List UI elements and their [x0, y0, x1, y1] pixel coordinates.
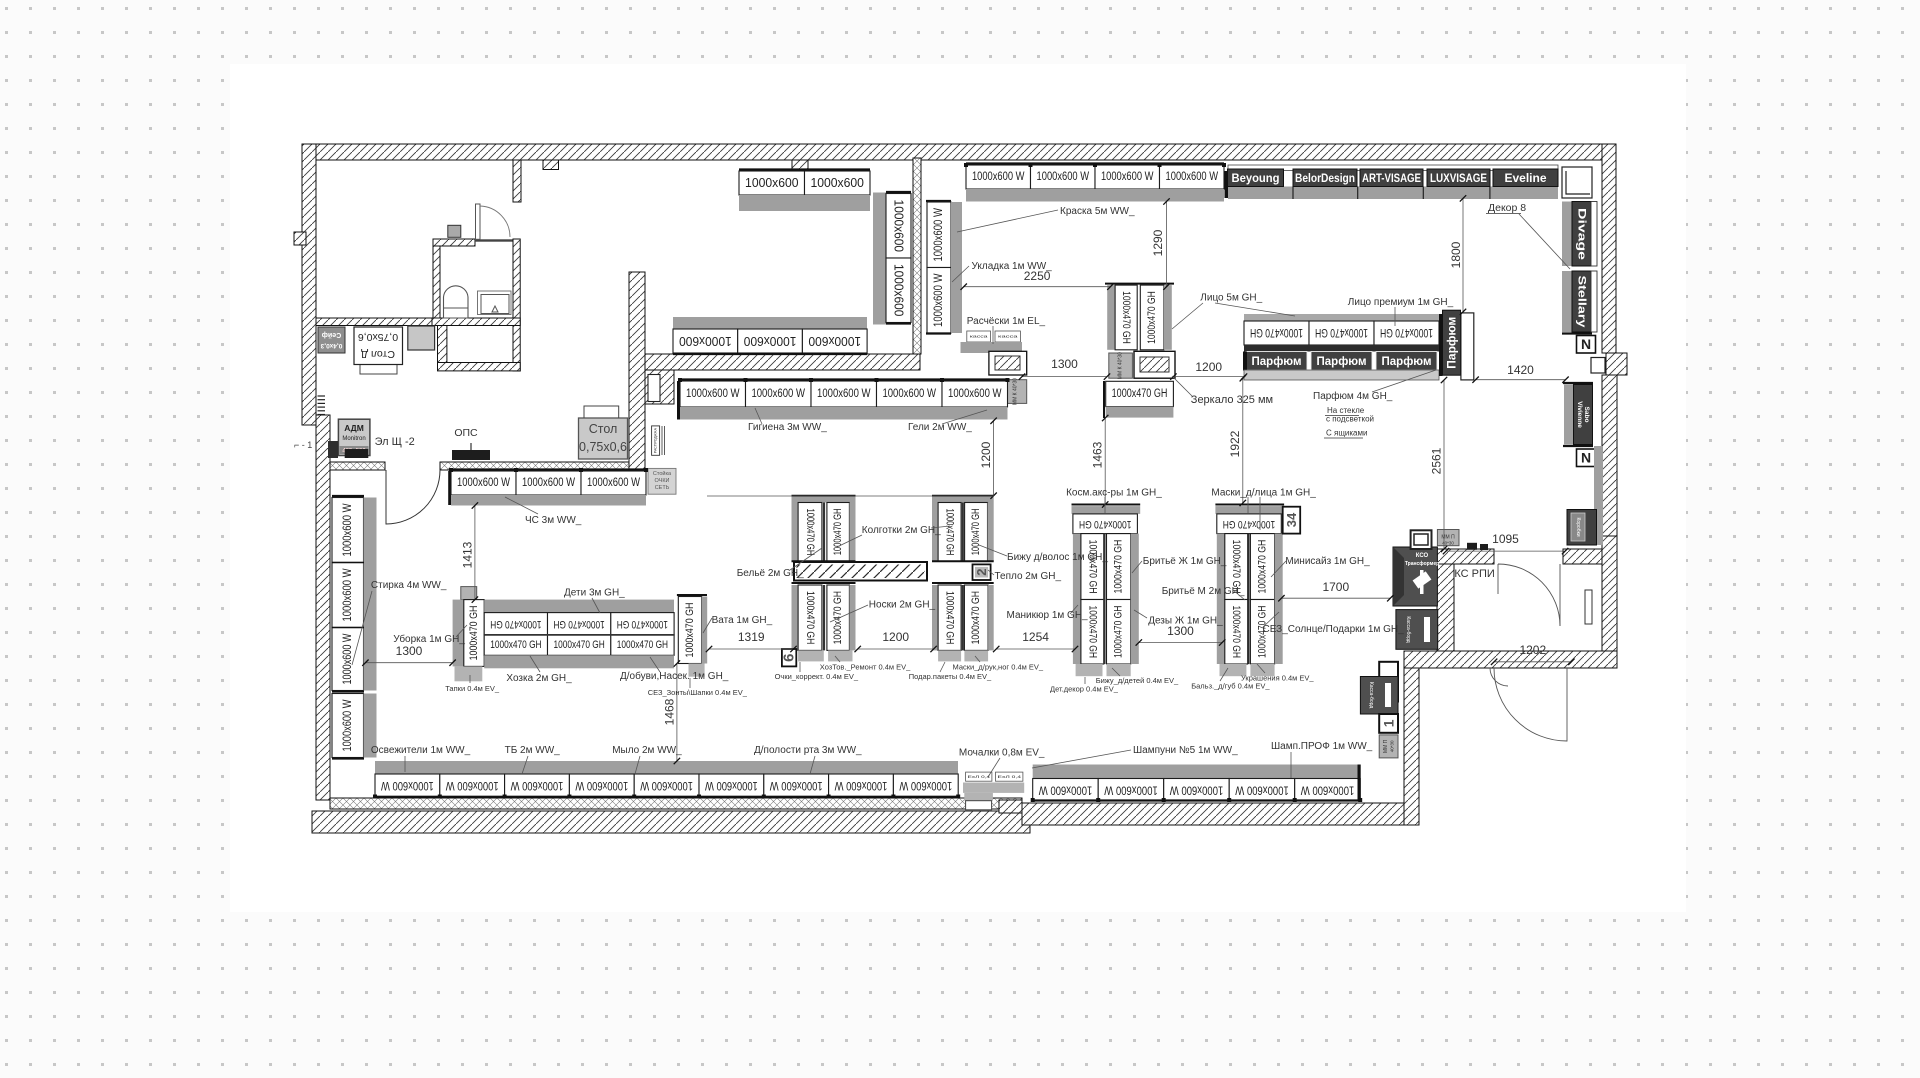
svg-text:Маски_д/лица 1м GH_: Маски_д/лица 1м GH_ — [1211, 488, 1316, 499]
svg-text:1000х470 GH: 1000х470 GH — [684, 602, 696, 657]
svg-text:1000х600 W: 1000х600 W — [446, 779, 499, 791]
svg-text:1000х600 W: 1000х600 W — [948, 388, 1002, 400]
svg-text:Парфюм: Парфюм — [1382, 354, 1432, 368]
svg-text:1000х600 W: 1000х600 W — [1039, 784, 1093, 796]
svg-text:1000х600 W: 1000х600 W — [640, 779, 693, 791]
svg-text:Бальз._д/губ 0.4м EV_: Бальз._д/губ 0.4м EV_ — [1191, 682, 1270, 691]
svg-text:1000х470 GH: 1000х470 GH — [1113, 606, 1125, 659]
svg-text:Очки_коррект. 0.4м EV_: Очки_коррект. 0.4м EV_ — [775, 672, 859, 681]
svg-text:1000х600 W: 1000х600 W — [1166, 171, 1219, 183]
svg-text:1000х600 W: 1000х600 W — [834, 779, 887, 791]
svg-text:1095: 1095 — [1492, 532, 1519, 546]
svg-text:ММ П: ММ П — [1383, 739, 1389, 753]
svg-text:Стол: Стол — [589, 422, 618, 436]
svg-text:1000х470 GH: 1000х470 GH — [1223, 518, 1276, 530]
svg-text:1000х600: 1000х600 — [679, 334, 732, 348]
svg-text:Маски_д/рук,ног 0.4м EV_: Маски_д/рук,ног 0.4м EV_ — [953, 663, 1044, 672]
svg-text:СЕЗ_Зонты\Шапки 0.4м EV_: СЕЗ_Зонты\Шапки 0.4м EV_ — [648, 688, 748, 697]
svg-text:С ящиками: С ящиками — [1326, 429, 1367, 438]
svg-text:1000х600 W: 1000х600 W — [899, 779, 952, 791]
svg-text:Бритьё М 2м GH_: Бритьё М 2м GH_ — [1162, 586, 1245, 597]
svg-text:Косм.акс-ры 1м GH_: Косм.акс-ры 1м GH_ — [1066, 488, 1162, 499]
svg-text:1000х470 GH: 1000х470 GH — [617, 618, 668, 630]
svg-text:1000х600 W: 1000х600 W — [1170, 784, 1224, 796]
svg-text:1000х470 GH: 1000х470 GH — [970, 508, 982, 555]
svg-text:1000х600 W: 1000х600 W — [972, 171, 1025, 183]
svg-text:1000х600: 1000х600 — [808, 334, 861, 348]
svg-text:касса: касса — [970, 335, 989, 339]
svg-text:ОПС: ОПС — [454, 427, 478, 439]
svg-text:1800: 1800 — [1449, 241, 1463, 268]
svg-text:1319: 1319 — [738, 630, 765, 644]
svg-text:1000х600 W: 1000х600 W — [705, 779, 758, 791]
svg-text:1202: 1202 — [1519, 643, 1546, 657]
svg-text:1300: 1300 — [1051, 357, 1078, 371]
svg-text:КС РПИ: КС РПИ — [1454, 568, 1494, 580]
svg-text:1000х600 W: 1000х600 W — [1101, 171, 1154, 183]
svg-text:1000х470 GH: 1000х470 GH — [804, 591, 816, 644]
svg-text:Stellary: Stellary — [1576, 276, 1588, 329]
svg-text:касса: касса — [998, 335, 1019, 339]
svg-text:ХозТов._Ремонт 0.4м EV_: ХозТов._Ремонт 0.4м EV_ — [820, 663, 911, 672]
svg-text:1000х600 W: 1000х600 W — [817, 388, 871, 400]
svg-text:Д/полости рта 3м WW_: Д/полости рта 3м WW_ — [754, 745, 862, 756]
svg-text:Парфюм 4м GH_: Парфюм 4м GH_ — [1313, 390, 1393, 402]
svg-text:1200: 1200 — [882, 630, 909, 644]
svg-text:1000х470 GH: 1000х470 GH — [1380, 326, 1433, 340]
svg-text:1000х470 GH: 1000х470 GH — [970, 591, 982, 644]
svg-text:1922: 1922 — [1228, 430, 1242, 457]
svg-text:Divage: Divage — [1576, 208, 1588, 260]
svg-text:Vivienne: Vivienne — [1576, 401, 1583, 428]
svg-text:Мочалки 0,8м EV_: Мочалки 0,8м EV_ — [959, 748, 1045, 759]
svg-text:АДМ: АДМ — [344, 423, 364, 433]
svg-text:Sabo: Sabo — [1583, 407, 1590, 423]
svg-text:1000х600 W: 1000х600 W — [342, 568, 354, 621]
svg-text:Дезы Ж 1м GH_: Дезы Ж 1м GH_ — [1148, 616, 1223, 627]
svg-text:1000х470 GH: 1000х470 GH — [1113, 540, 1125, 594]
svg-text:1000х470 GH: 1000х470 GH — [1257, 540, 1269, 594]
svg-text:Тепло 2м GH_: Тепло 2м GH_ — [995, 571, 1062, 582]
svg-text:Уборка 1м GH_: Уборка 1м GH_ — [393, 633, 465, 645]
svg-text:Стирка 4м WW_: Стирка 4м WW_ — [371, 580, 447, 591]
svg-text:Eveline: Eveline — [1505, 171, 1547, 185]
svg-text:1000х600: 1000х600 — [810, 176, 864, 190]
svg-text:1000х600 W: 1000х600 W — [1037, 171, 1090, 183]
svg-text:1290: 1290 — [1151, 229, 1165, 256]
svg-text:Бижу д/волос 1м GH_: Бижу д/волос 1м GH_ — [1007, 552, 1108, 563]
svg-text:1000х470 GH: 1000х470 GH — [1250, 326, 1303, 340]
svg-text:1000х600 W: 1000х600 W — [686, 388, 740, 400]
svg-text:Эл Щ -2: Эл Щ -2 — [375, 436, 415, 448]
svg-text:ММ К 40*30: ММ К 40*30 — [1118, 352, 1124, 379]
svg-text:1000х600 W: 1000х600 W — [342, 633, 354, 684]
svg-text:Бижу_д/детей 0.4м EV_: Бижу_д/детей 0.4м EV_ — [1096, 676, 1179, 685]
svg-text:1000х600 W: 1000х600 W — [522, 477, 575, 489]
svg-text:Дет.декор 0.4м EV_: Дет.декор 0.4м EV_ — [1050, 685, 1119, 694]
svg-text:1463: 1463 — [1091, 441, 1105, 468]
svg-text:1000х470 GH: 1000х470 GH — [1315, 326, 1368, 340]
svg-text:BelorDesign: BelorDesign — [1295, 171, 1355, 185]
svg-text:1000х600: 1000х600 — [745, 176, 799, 190]
svg-text:0,75х0,6: 0,75х0,6 — [358, 331, 398, 343]
svg-text:Д/обуви,Насек. 1м GH_: Д/обуви,Насек. 1м GH_ — [620, 670, 729, 682]
svg-text:Коробки: Коробки — [1575, 517, 1581, 536]
svg-text:2: 2 — [974, 569, 989, 576]
svg-text:1000х600 W: 1000х600 W — [882, 388, 936, 400]
svg-text:1000х470 GH: 1000х470 GH — [1079, 518, 1132, 530]
svg-text:1420: 1420 — [1507, 363, 1534, 377]
svg-text:Расчёски 1м EL_: Расчёски 1м EL_ — [967, 316, 1046, 327]
svg-text:1000х600 W: 1000х600 W — [381, 779, 434, 791]
svg-text:1254: 1254 — [1022, 630, 1049, 644]
svg-text:1000х600 W: 1000х600 W — [587, 477, 640, 489]
svg-text:0,4х0,3: 0,4х0,3 — [320, 342, 342, 349]
svg-text:1000х470 GH: 1000х470 GH — [1146, 291, 1158, 344]
svg-text:0,75х0,6: 0,75х0,6 — [579, 440, 627, 454]
svg-text:1000х600: 1000х600 — [892, 264, 906, 317]
svg-text:1000х600 W: 1000х600 W — [770, 779, 823, 791]
svg-text:2561: 2561 — [1430, 447, 1444, 474]
svg-text:1000х600 W: 1000х600 W — [342, 503, 354, 556]
svg-text:Парфюм: Парфюм — [1317, 354, 1367, 368]
svg-text:ОЧКИ: ОЧКИ — [655, 478, 670, 484]
svg-text:1000х600 W: 1000х600 W — [510, 779, 563, 791]
svg-text:Гигиена 3м WW_: Гигиена 3м WW_ — [748, 422, 827, 433]
svg-text:Дети 3м GH_: Дети 3м GH_ — [564, 588, 625, 599]
svg-text:1000х600 W: 1000х600 W — [751, 388, 805, 400]
svg-text:Monitron: Monitron — [342, 436, 365, 442]
svg-text:Зеркало 325 мм: Зеркало 325 мм — [1191, 394, 1273, 406]
svg-text:40*30: 40*30 — [1390, 740, 1395, 752]
svg-text:N: N — [1581, 450, 1591, 466]
svg-text:РАСПРОДАЖА: РАСПРОДАЖА — [654, 427, 658, 453]
svg-text:1000х470 GH: 1000х470 GH — [1086, 606, 1098, 659]
svg-text:СЕЗ_Солнце/Подарки 1м GH_: СЕЗ_Солнце/Подарки 1м GH_ — [1263, 624, 1405, 635]
svg-text:1000х470 GH: 1000х470 GH — [617, 639, 668, 651]
svg-text:ЕхЛ 0,4: ЕхЛ 0,4 — [968, 774, 992, 779]
svg-text:1000х600 W: 1000х600 W — [1235, 784, 1289, 796]
svg-text:КСО: КСО — [1416, 553, 1429, 559]
svg-text:1468: 1468 — [663, 698, 677, 725]
svg-text:Касса-борд: Касса-борд — [1405, 616, 1411, 642]
svg-text:1413: 1413 — [461, 541, 475, 568]
svg-text:СЕТЬ: СЕТЬ — [655, 485, 670, 491]
svg-text:1200: 1200 — [1195, 360, 1222, 374]
svg-text:1000х470 GH: 1000х470 GH — [468, 606, 480, 661]
svg-text:Стойка: Стойка — [653, 470, 672, 477]
svg-text:1000х600 W: 1000х600 W — [457, 477, 510, 489]
svg-text:ММ К 40*30: ММ К 40*30 — [1013, 378, 1019, 405]
svg-text:1000х600: 1000х600 — [892, 200, 906, 253]
svg-text:1000х470 GH: 1000х470 GH — [1120, 291, 1132, 344]
svg-text:34: 34 — [1284, 512, 1299, 527]
svg-text:1200: 1200 — [979, 441, 993, 468]
svg-text:Лицо премиум 1м GH_: Лицо премиум 1м GH_ — [1348, 297, 1454, 308]
svg-text:1000х470 GH: 1000х470 GH — [944, 509, 956, 556]
svg-text:Трансформер: Трансформер — [1405, 560, 1439, 567]
svg-text:ЧС 3м WW_: ЧС 3м WW_ — [525, 515, 582, 526]
svg-text:⌐ - 1: ⌐ - 1 — [294, 440, 312, 450]
svg-text:1000х470 GH: 1000х470 GH — [832, 508, 844, 555]
svg-text:Бритьё Ж 1м GH_: Бритьё Ж 1м GH_ — [1143, 556, 1227, 567]
svg-text:Шампуни №5 1м WW_: Шампуни №5 1м WW_ — [1133, 745, 1238, 756]
svg-text:1000х470 GH: 1000х470 GH — [553, 618, 604, 630]
svg-text:1000х600 W: 1000х600 W — [575, 779, 628, 791]
svg-text:Касса-борд: Касса-борд — [1368, 682, 1374, 708]
svg-text:Минисайз 1м GH_: Минисайз 1м GH_ — [1285, 556, 1370, 567]
svg-text:Стол Д: Стол Д — [361, 348, 395, 360]
svg-text:1000х470 GH: 1000х470 GH — [804, 509, 816, 556]
svg-text:1000х470 GH: 1000х470 GH — [1086, 540, 1098, 594]
svg-text:1000х470 GH: 1000х470 GH — [1112, 388, 1168, 400]
svg-text:Мыло 2м WW_: Мыло 2м WW_ — [612, 745, 682, 756]
svg-text:1700: 1700 — [1322, 580, 1349, 594]
svg-text:6: 6 — [781, 654, 798, 662]
svg-text:Подар.пакеты 0.4м EV_: Подар.пакеты 0.4м EV_ — [909, 672, 992, 681]
svg-text:Декор 8: Декор 8 — [1488, 202, 1526, 214]
svg-text:1: 1 — [1381, 719, 1397, 727]
svg-text:Краска 5м WW_: Краска 5м WW_ — [1060, 206, 1135, 217]
svg-text:Сейф: Сейф — [322, 331, 341, 339]
svg-text:Маникюр 1м GH_: Маникюр 1м GH_ — [1007, 610, 1089, 621]
svg-text:Beyoung: Beyoung — [1232, 171, 1280, 185]
svg-text:1000х470 GH: 1000х470 GH — [1230, 606, 1242, 659]
svg-text:1300: 1300 — [396, 644, 423, 658]
svg-text:ART-VISAGE: ART-VISAGE — [1362, 171, 1421, 185]
svg-text:Украшения 0.4м EV_: Украшения 0.4м EV_ — [1241, 674, 1314, 683]
svg-text:Бельё 2м GH_: Бельё 2м GH_ — [737, 568, 804, 579]
svg-text:N: N — [1581, 336, 1591, 352]
svg-text:1000х600 W: 1000х600 W — [1104, 784, 1158, 796]
svg-text:с подсветкой: с подсветкой — [1326, 415, 1374, 424]
svg-text:1000х470 GH: 1000х470 GH — [944, 591, 956, 644]
svg-text:1000х470 GH: 1000х470 GH — [490, 639, 541, 651]
svg-text:Тапки 0.4м EV_: Тапки 0.4м EV_ — [445, 684, 500, 693]
svg-text:1000х600 W: 1000х600 W — [342, 699, 354, 751]
svg-text:1000х470 GH: 1000х470 GH — [490, 618, 541, 630]
svg-text:Хозка 2м GH_: Хозка 2м GH_ — [506, 673, 572, 684]
svg-text:Колготки 2м GH_: Колготки 2м GH_ — [862, 525, 941, 536]
svg-text:Носки 2м GH_: Носки 2м GH_ — [869, 600, 936, 611]
svg-text:ЕхЛ 0,4: ЕхЛ 0,4 — [998, 774, 1023, 779]
svg-text:1000х470 GH: 1000х470 GH — [553, 639, 604, 651]
svg-text:ТБ 2м WW_: ТБ 2м WW_ — [505, 745, 561, 756]
svg-text:Укладка 1м WW_: Укладка 1м WW_ — [972, 261, 1053, 272]
svg-text:LUXVISAGE: LUXVISAGE — [1430, 171, 1487, 185]
svg-text:Вата 1м GH_: Вата 1м GH_ — [712, 615, 773, 626]
svg-text:1000х600 W: 1000х600 W — [1301, 784, 1355, 796]
svg-text:Парфюм: Парфюм — [1252, 354, 1302, 368]
svg-text:1000х470 GH: 1000х470 GH — [832, 591, 844, 644]
svg-text:1000х600 W: 1000х600 W — [933, 273, 945, 327]
svg-text:Парфюм: Парфюм — [1445, 317, 1459, 369]
svg-text:Лицо 5м GH_: Лицо 5м GH_ — [1200, 293, 1262, 304]
svg-text:Шамп.ПРОФ 1м WW_: Шамп.ПРОФ 1м WW_ — [1271, 741, 1373, 752]
svg-text:1000х600 W: 1000х600 W — [933, 208, 945, 262]
svg-text:Гели 2м WW_: Гели 2м WW_ — [908, 422, 972, 433]
svg-text:1000х600: 1000х600 — [744, 334, 797, 348]
svg-text:Освежители 1м WW_: Освежители 1м WW_ — [371, 745, 471, 756]
